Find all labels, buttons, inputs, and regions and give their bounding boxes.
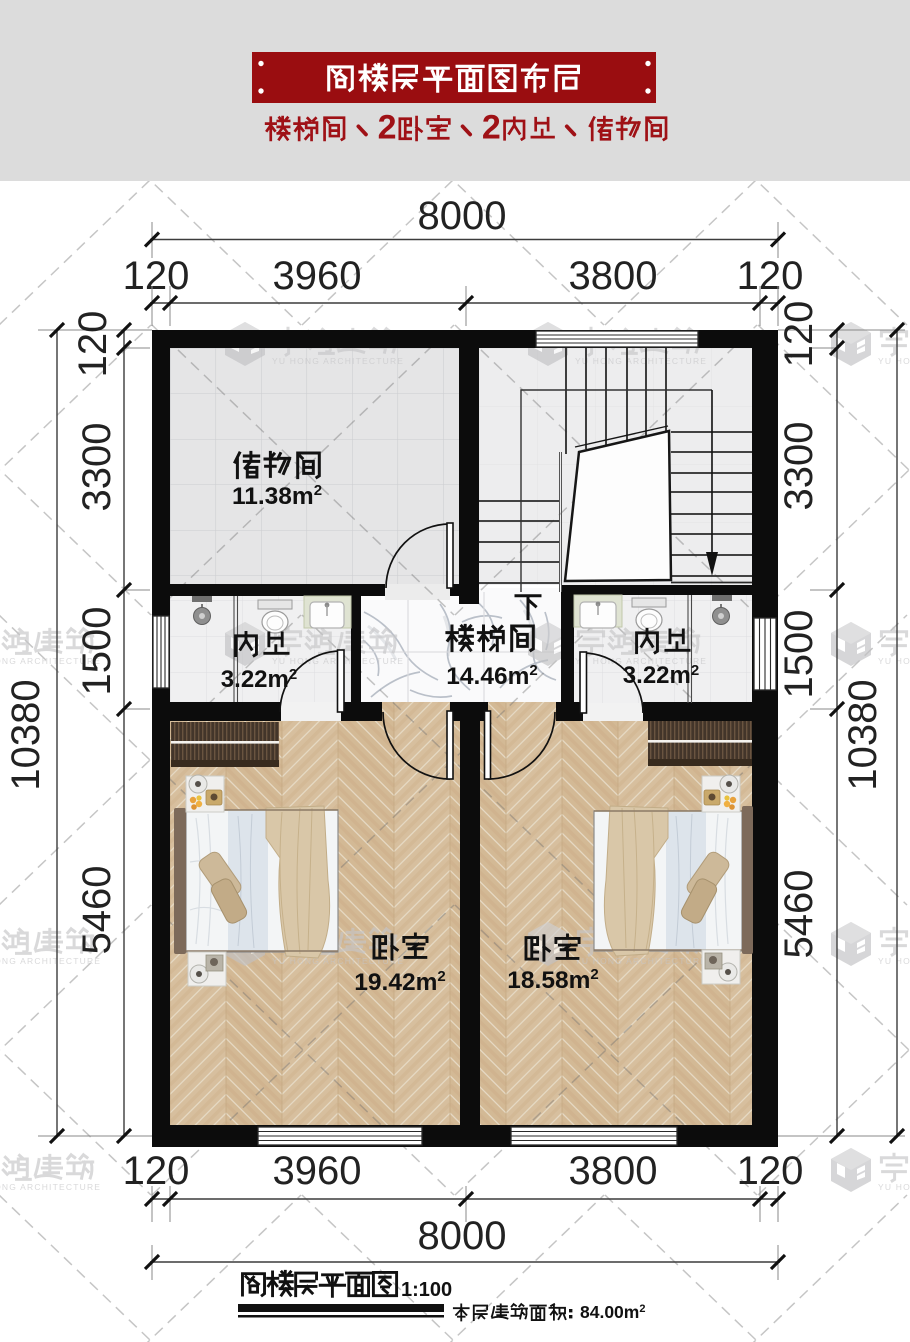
svg-text:2: 2 [482,109,501,147]
svg-text:3300: 3300 [777,422,821,511]
svg-text:2: 2 [378,109,397,147]
svg-text:120: 120 [123,1149,190,1193]
svg-text:120: 120 [123,254,190,298]
svg-text:3.22m2: 3.22m2 [221,666,297,693]
svg-text:5460: 5460 [75,866,119,955]
svg-text:11.38m2: 11.38m2 [232,482,322,510]
svg-text:3300: 3300 [75,423,119,512]
svg-text:10380: 10380 [4,679,48,790]
svg-text:84.00m2: 84.00m2 [580,1302,645,1322]
svg-text:120: 120 [71,311,115,378]
svg-text:10380: 10380 [841,679,885,790]
svg-text:19.42m2: 19.42m2 [354,968,445,996]
svg-text:3.22m2: 3.22m2 [623,662,699,689]
svg-text:8000: 8000 [418,194,507,238]
svg-text:3800: 3800 [569,254,658,298]
svg-text:3800: 3800 [569,1149,658,1193]
svg-text:1500: 1500 [777,610,821,699]
svg-text:120: 120 [737,1149,804,1193]
svg-text:8000: 8000 [418,1214,507,1258]
svg-text:120: 120 [737,254,804,298]
svg-text:14.46m2: 14.46m2 [446,662,537,690]
svg-text:1:100: 1:100 [401,1279,452,1301]
svg-text:120: 120 [777,301,821,368]
svg-text:3960: 3960 [273,254,362,298]
svg-text:3960: 3960 [273,1149,362,1193]
svg-text:18.58m2: 18.58m2 [507,966,598,994]
svg-text:1500: 1500 [75,607,119,696]
svg-text:5460: 5460 [777,870,821,959]
